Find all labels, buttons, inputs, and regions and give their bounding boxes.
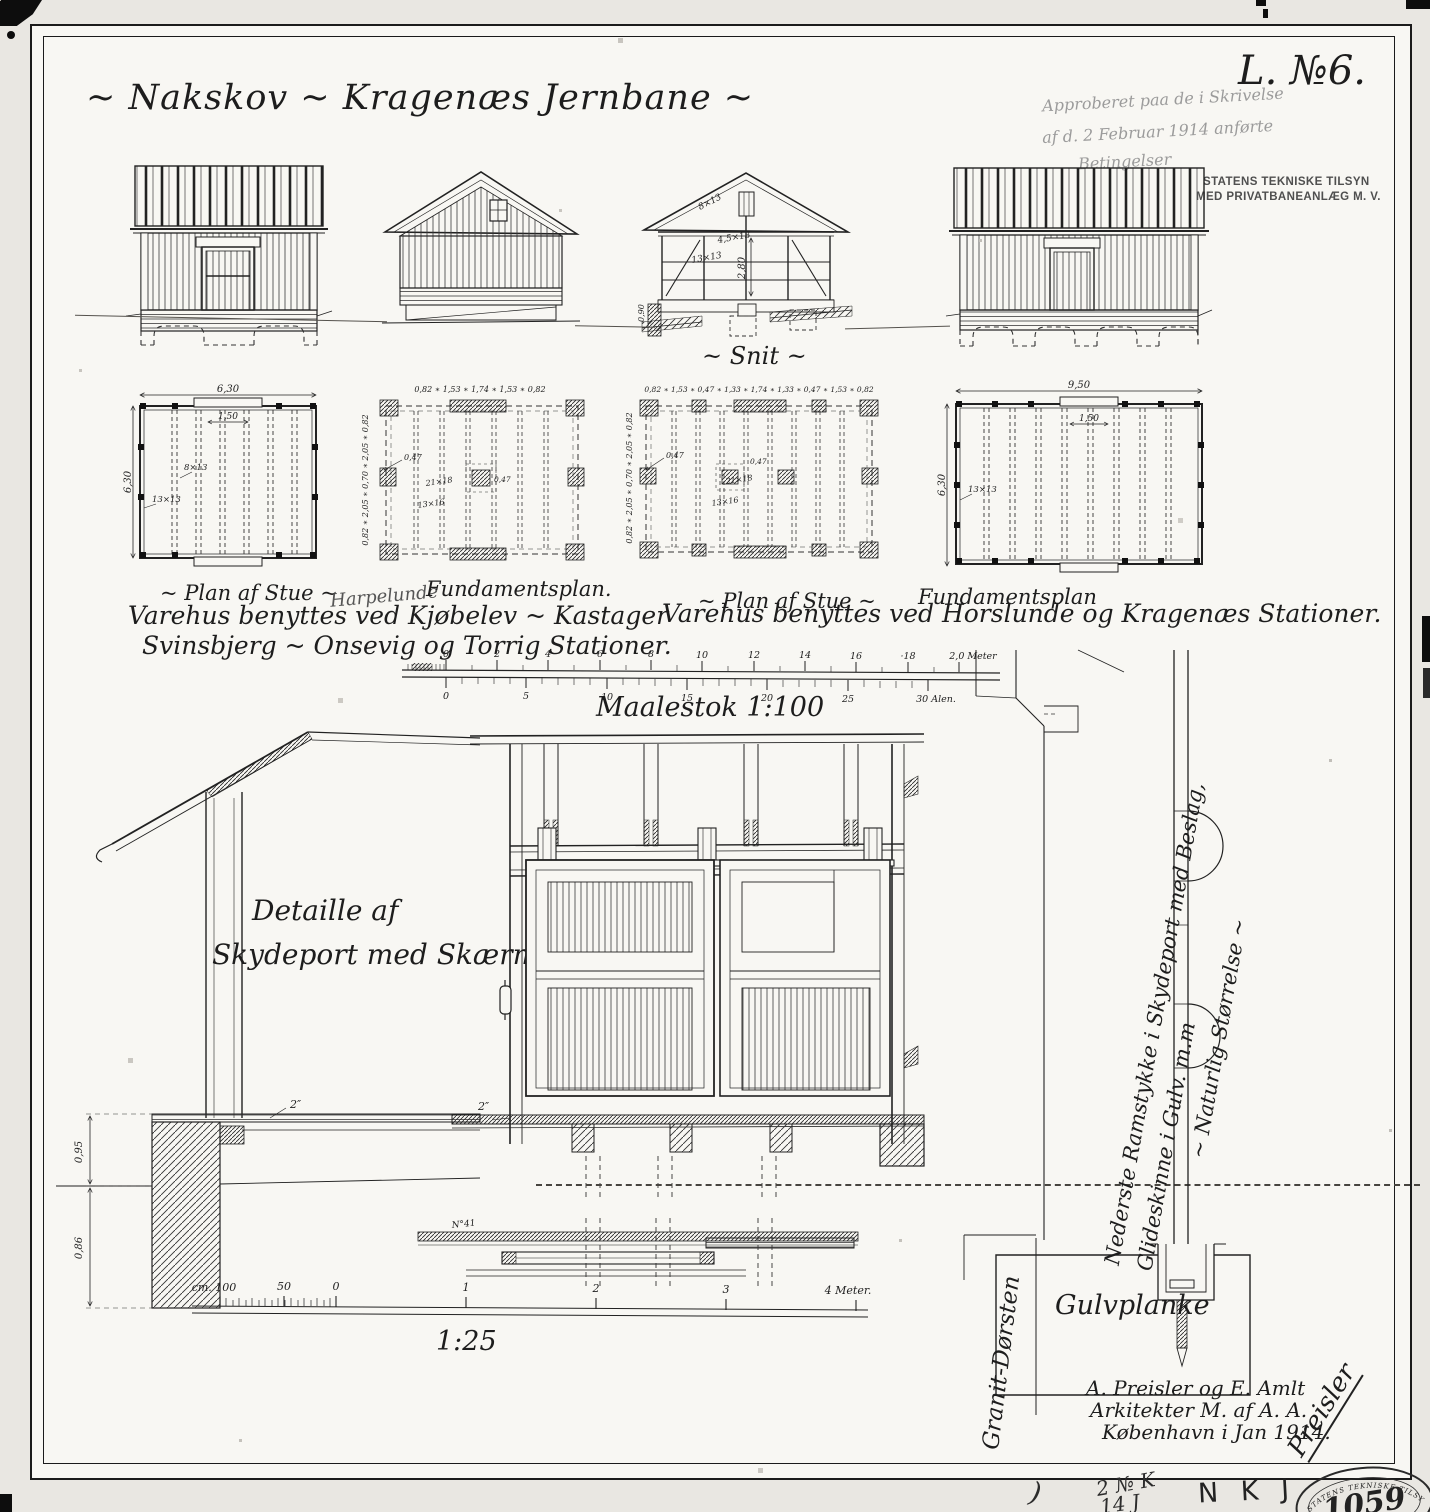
plan2-dims-left: 0,82 ∗ 2,05 ∗ 0,70 ∗ 2,05 ∗ 0,82 (361, 414, 370, 545)
fundamentsplan-small-figure: 0,82 ∗ 1,53 ∗ 1,74 ∗ 1,53 ∗ 0,82 0,82 ∗ … (360, 384, 600, 574)
scale25-tick-3: 1 (463, 1281, 470, 1294)
plan-stue-large-figure: 0,82 ∗ 1,53 ∗ 0,47 ∗ 1,33 ∗ 1,74 ∗ 1,33 … (626, 384, 892, 570)
scale25-tick-6: 4 Meter. (824, 1284, 872, 1297)
scale100-label: Maalestok 1:100 (596, 692, 824, 723)
fundamentsplan-large-figure: 9,50 6,30 1,50 13×13 (942, 382, 1216, 578)
sheet-title: ~ Nakskov ~ Kragenæs Jernbane ~ (86, 78, 754, 118)
scan-artifact (7, 31, 15, 39)
scale100-meter-tick-1: 2 (493, 649, 500, 660)
scale100-meter-tick-0: 0 (443, 649, 449, 660)
scale100-meter-tick-3: 6 (597, 649, 603, 660)
section-dim-rafter: 8×13 (697, 192, 724, 212)
plan1-dim-height: 6,30 (123, 470, 134, 493)
caption-fundamentsplan-small: Fundamentsplan. (426, 577, 612, 601)
usage-caption-large: Varehus benyttes ved Horslunde og Kragen… (662, 599, 1381, 628)
plan2-dims-top: 0,82 ∗ 1,53 ∗ 1,74 ∗ 1,53 ∗ 0,82 (414, 385, 545, 394)
scale100-alen-tick-0: 0 (443, 691, 449, 702)
gulvplanke-label: Gulvplanke (1055, 1290, 1210, 1321)
plan1-dim-joist: 8×13 (184, 463, 207, 473)
plan3-dim-sleeper: 13×16 (711, 495, 739, 508)
agency-stamp-line2: MED PRIVATBANEANLÆG M. V. (1196, 191, 1381, 203)
section-dim-post: 13×13 (691, 251, 723, 266)
scale25-tick-2: 0 (333, 1280, 340, 1293)
plan-stue-small-figure: 6,30 6,30 1,50 8×13 13×13 (128, 386, 328, 568)
plan4-dim-width: 9,50 (1068, 380, 1091, 391)
scan-artifact (0, 1494, 12, 1512)
elevation-front-small-warehouse (126, 164, 332, 350)
section-dim-foundation: 0,90 (637, 304, 646, 322)
section-dim-height: 2,80 (737, 256, 748, 280)
scale100-meter-tick-2: 4 (544, 649, 551, 660)
scan-artifact (1423, 668, 1430, 698)
plan3-dims-left: 0,82 ∗ 2,05 ∗ 0,70 ∗ 2,05 ∗ 0,82 (625, 412, 634, 543)
plan1-dim-door: 1,50 (218, 412, 238, 422)
plan3-dim-pad2: 0,47 (750, 457, 767, 466)
scale100-meter-tick-7: 14 (799, 650, 811, 661)
scale100-meter-tick-6: 12 (748, 650, 760, 661)
scan-artifact (1256, 0, 1266, 6)
plan2-dim-beam: 21×18 (424, 475, 453, 488)
plan1-dim-post: 13×13 (152, 495, 181, 505)
eave-dim-plank: 2″ (289, 1098, 302, 1111)
scale100-alen-tick-6: 30 Alen. (916, 694, 956, 705)
hand-initials-nkj: N K J (1197, 1473, 1297, 1509)
cross-section-figure: 8×13 4,5×13 13×13 2,80 0,90 (642, 170, 852, 342)
eave-dim-lower: 0,86 (74, 1236, 85, 1259)
elevation-long-warehouse (946, 166, 1212, 350)
scan-artifact (1422, 616, 1430, 662)
section-caption: ~ Snit ~ (702, 342, 807, 370)
scanned-drawing-sheet: { "sheet": { "title": "~ Nakskov ~ Krage… (0, 0, 1430, 1512)
plan4-dim-height: 6,30 (937, 473, 948, 496)
plan2-dim-sleeper: 13×16 (417, 497, 445, 510)
agency-stamp-line1: STATENS TEKNISKE TILSYN (1203, 176, 1370, 188)
plan4-dim-door: 1,50 (1079, 414, 1099, 424)
scale-bar-1-25: cm. 100 50 0 1 2 3 4 Meter. (184, 1276, 876, 1336)
scale25-label: 1:25 (436, 1326, 497, 1357)
elevation-gable (382, 168, 580, 328)
plan3-dims-top: 0,82 ∗ 1,53 ∗ 0,47 ∗ 1,33 ∗ 1,74 ∗ 1,33 … (644, 385, 873, 394)
eave-dim-upper: 0,95 (74, 1141, 85, 1163)
scale25-tick-4: 2 (592, 1282, 600, 1295)
scan-artifact (1406, 0, 1430, 9)
scale100-meter-tick-5: 10 (696, 650, 708, 661)
scale25-tick-5: 3 (723, 1283, 730, 1296)
scale25-tick-0: cm. 100 (192, 1281, 237, 1294)
scan-artifact (1263, 9, 1268, 18)
plan2-dim-pad2: 0,47 (494, 475, 511, 484)
door-floor-dim: 2″ (477, 1100, 490, 1113)
usage-caption-small-line1: Varehus benyttes ved Kjøbelev ~ Kastager (128, 601, 668, 630)
scale100-alen-tick-1: 5 (523, 691, 529, 702)
architect-line1: A. Preisler og E. Amlt (1086, 1376, 1305, 1400)
sliding-door-detail: 2″ (452, 724, 924, 1198)
scale100-meter-tick-4: 8 (648, 649, 654, 660)
plan1-dim-width: 6,30 (217, 384, 240, 395)
architect-line2: Arkitekter M. af A. A. (1090, 1398, 1307, 1422)
detail-title-line1: Detaille af (252, 894, 398, 927)
plan2-dim-pad: 0,47 (404, 453, 423, 462)
scale25-tick-1: 50 (277, 1280, 291, 1293)
plan4-dim-post: 13×13 (968, 485, 997, 495)
plan3-dim-pad: 0,47 (666, 451, 685, 460)
scan-speckles (0, 0, 1, 1)
scale100-meter-tick-9: ·18 (900, 651, 915, 662)
door-plan-note: N°41 (450, 1219, 476, 1232)
hand-paren-mark: ) (1027, 1475, 1045, 1510)
scan-artifact (0, 0, 42, 26)
scale100-alen-tick-5: 25 (841, 694, 854, 705)
scale100-meter-tick-8: 16 (850, 651, 862, 662)
